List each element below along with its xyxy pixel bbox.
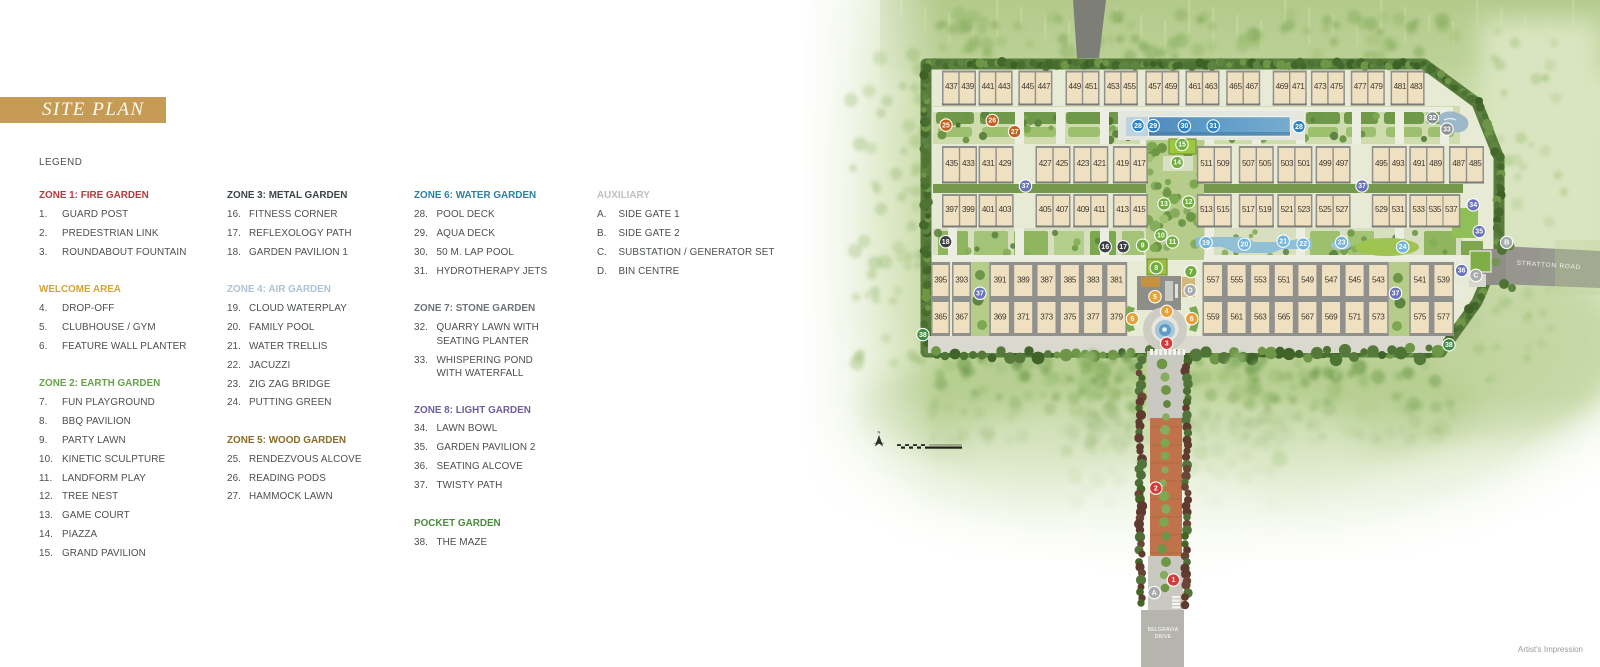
svg-text:433: 433: [962, 159, 975, 168]
svg-text:529: 529: [1375, 205, 1388, 214]
svg-text:543: 543: [1372, 276, 1385, 285]
svg-text:531: 531: [1392, 205, 1405, 214]
svg-text:573: 573: [1372, 313, 1385, 322]
svg-text:8: 8: [1154, 265, 1158, 272]
svg-text:369: 369: [994, 313, 1007, 322]
svg-text:449: 449: [1068, 82, 1081, 91]
svg-text:27: 27: [1011, 129, 1019, 136]
svg-text:457: 457: [1148, 82, 1161, 91]
svg-text:575: 575: [1414, 313, 1427, 322]
svg-text:N: N: [878, 430, 881, 435]
svg-text:6: 6: [1190, 316, 1194, 323]
svg-text:463: 463: [1205, 82, 1218, 91]
svg-text:415: 415: [1133, 205, 1146, 214]
svg-text:D: D: [1188, 288, 1193, 295]
svg-text:413: 413: [1116, 205, 1129, 214]
svg-text:405: 405: [1039, 205, 1052, 214]
svg-text:34: 34: [1469, 202, 1477, 209]
svg-text:377: 377: [1087, 313, 1100, 322]
svg-text:BELGRAVIA: BELGRAVIA: [1148, 627, 1179, 633]
svg-text:391: 391: [994, 276, 1007, 285]
svg-text:1: 1: [1171, 577, 1175, 584]
svg-text:429: 429: [999, 159, 1012, 168]
svg-text:511: 511: [1200, 159, 1213, 168]
svg-text:387: 387: [1040, 276, 1053, 285]
svg-text:29: 29: [1149, 123, 1157, 130]
svg-text:409: 409: [1077, 205, 1090, 214]
svg-text:533: 533: [1412, 205, 1425, 214]
svg-text:443: 443: [998, 82, 1011, 91]
svg-text:527: 527: [1336, 205, 1349, 214]
svg-text:535: 535: [1429, 205, 1442, 214]
svg-text:375: 375: [1064, 313, 1077, 322]
svg-text:35: 35: [1475, 229, 1483, 236]
svg-text:2: 2: [1154, 485, 1158, 492]
svg-text:22: 22: [1299, 241, 1307, 248]
svg-text:20: 20: [1241, 241, 1249, 248]
svg-text:5: 5: [1153, 294, 1157, 301]
svg-text:381: 381: [1110, 276, 1123, 285]
svg-text:DRIVE: DRIVE: [1155, 634, 1172, 640]
svg-text:407: 407: [1056, 205, 1069, 214]
svg-text:547: 547: [1325, 276, 1338, 285]
svg-text:379: 379: [1110, 313, 1123, 322]
svg-text:441: 441: [982, 82, 995, 91]
svg-text:13: 13: [1160, 201, 1168, 208]
svg-text:17: 17: [1119, 244, 1127, 251]
svg-text:12: 12: [1185, 199, 1193, 206]
svg-text:423: 423: [1077, 159, 1090, 168]
svg-text:559: 559: [1207, 313, 1220, 322]
svg-text:427: 427: [1039, 159, 1052, 168]
svg-text:467: 467: [1245, 82, 1258, 91]
svg-text:10: 10: [1157, 232, 1165, 239]
svg-text:30: 30: [1181, 123, 1189, 130]
svg-text:3: 3: [1165, 341, 1169, 348]
svg-text:455: 455: [1123, 82, 1136, 91]
svg-text:395: 395: [934, 276, 947, 285]
svg-text:Artist's Impression: Artist's Impression: [1518, 645, 1583, 654]
svg-text:487: 487: [1452, 159, 1465, 168]
svg-text:507: 507: [1242, 159, 1255, 168]
svg-text:31: 31: [1209, 123, 1217, 130]
svg-text:477: 477: [1354, 82, 1367, 91]
svg-text:23: 23: [1338, 240, 1346, 247]
svg-text:421: 421: [1093, 159, 1106, 168]
svg-text:18: 18: [942, 239, 950, 246]
svg-text:499: 499: [1319, 159, 1332, 168]
svg-text:569: 569: [1325, 313, 1338, 322]
svg-text:485: 485: [1469, 159, 1482, 168]
svg-text:469: 469: [1276, 82, 1289, 91]
svg-text:24: 24: [1399, 244, 1407, 251]
svg-text:7: 7: [1189, 269, 1193, 276]
svg-text:28: 28: [1134, 123, 1142, 130]
svg-text:385: 385: [1064, 276, 1077, 285]
svg-text:473: 473: [1314, 82, 1327, 91]
svg-text:37: 37: [1392, 291, 1400, 298]
svg-text:A: A: [1152, 590, 1157, 597]
svg-text:521: 521: [1281, 205, 1294, 214]
svg-text:411: 411: [1094, 205, 1107, 214]
svg-text:14: 14: [1173, 160, 1181, 167]
svg-text:37: 37: [1022, 183, 1030, 190]
svg-text:481: 481: [1394, 82, 1407, 91]
svg-text:425: 425: [1056, 159, 1069, 168]
svg-text:537: 537: [1445, 205, 1458, 214]
svg-text:523: 523: [1297, 205, 1310, 214]
svg-text:453: 453: [1107, 82, 1120, 91]
svg-text:445: 445: [1021, 82, 1034, 91]
svg-text:4: 4: [1165, 309, 1169, 316]
svg-text:565: 565: [1278, 313, 1291, 322]
svg-text:16: 16: [1101, 244, 1109, 251]
svg-text:517: 517: [1242, 205, 1255, 214]
svg-text:465: 465: [1229, 82, 1242, 91]
svg-text:471: 471: [1292, 82, 1305, 91]
svg-text:C: C: [1473, 273, 1478, 280]
svg-text:399: 399: [962, 205, 975, 214]
svg-text:38: 38: [919, 332, 927, 339]
svg-text:403: 403: [999, 205, 1012, 214]
svg-text:439: 439: [961, 82, 974, 91]
svg-text:571: 571: [1348, 313, 1361, 322]
svg-text:497: 497: [1336, 159, 1349, 168]
svg-text:489: 489: [1429, 159, 1442, 168]
svg-text:451: 451: [1085, 82, 1098, 91]
svg-text:551: 551: [1278, 276, 1291, 285]
svg-text:519: 519: [1259, 205, 1272, 214]
svg-text:401: 401: [982, 205, 995, 214]
svg-text:491: 491: [1413, 159, 1426, 168]
svg-text:435: 435: [945, 159, 958, 168]
svg-text:21: 21: [1279, 238, 1287, 245]
svg-text:509: 509: [1217, 159, 1230, 168]
svg-text:513: 513: [1200, 205, 1213, 214]
svg-text:37: 37: [976, 291, 984, 298]
svg-text:567: 567: [1301, 313, 1314, 322]
svg-text:461: 461: [1188, 82, 1201, 91]
svg-text:557: 557: [1207, 276, 1220, 285]
svg-text:475: 475: [1330, 82, 1343, 91]
svg-text:11: 11: [1169, 239, 1177, 246]
svg-text:6: 6: [1131, 316, 1135, 323]
svg-text:555: 555: [1230, 276, 1243, 285]
svg-text:38: 38: [1445, 342, 1453, 349]
svg-text:495: 495: [1375, 159, 1388, 168]
svg-text:505: 505: [1259, 159, 1272, 168]
svg-text:367: 367: [955, 313, 968, 322]
svg-text:459: 459: [1165, 82, 1178, 91]
svg-text:525: 525: [1319, 205, 1332, 214]
svg-text:563: 563: [1254, 313, 1267, 322]
svg-text:561: 561: [1230, 313, 1243, 322]
svg-text:539: 539: [1437, 276, 1450, 285]
svg-text:541: 541: [1414, 276, 1427, 285]
svg-text:28: 28: [1295, 124, 1303, 131]
svg-text:493: 493: [1392, 159, 1405, 168]
svg-text:397: 397: [945, 205, 958, 214]
svg-text:383: 383: [1087, 276, 1100, 285]
svg-text:393: 393: [955, 276, 968, 285]
svg-text:9: 9: [1141, 243, 1145, 250]
svg-text:417: 417: [1133, 159, 1146, 168]
svg-text:419: 419: [1116, 159, 1129, 168]
svg-text:503: 503: [1281, 159, 1294, 168]
svg-text:37: 37: [1358, 183, 1366, 190]
svg-text:25: 25: [942, 122, 950, 129]
svg-text:577: 577: [1437, 313, 1450, 322]
svg-text:501: 501: [1297, 159, 1310, 168]
svg-text:479: 479: [1370, 82, 1383, 91]
svg-text:B: B: [1504, 240, 1509, 247]
svg-text:515: 515: [1217, 205, 1230, 214]
svg-text:553: 553: [1254, 276, 1267, 285]
svg-text:15: 15: [1178, 142, 1186, 149]
svg-text:549: 549: [1301, 276, 1314, 285]
svg-text:447: 447: [1038, 82, 1051, 91]
svg-text:32: 32: [1429, 115, 1437, 122]
svg-text:389: 389: [1017, 276, 1030, 285]
svg-text:19: 19: [1202, 240, 1210, 247]
svg-text:431: 431: [982, 159, 995, 168]
svg-text:483: 483: [1410, 82, 1423, 91]
svg-text:373: 373: [1040, 313, 1053, 322]
svg-text:36: 36: [1458, 268, 1466, 275]
svg-text:365: 365: [934, 313, 947, 322]
svg-text:545: 545: [1348, 276, 1361, 285]
svg-text:371: 371: [1017, 313, 1030, 322]
svg-text:26: 26: [988, 118, 996, 125]
svg-text:33: 33: [1443, 126, 1451, 133]
svg-text:437: 437: [945, 82, 958, 91]
